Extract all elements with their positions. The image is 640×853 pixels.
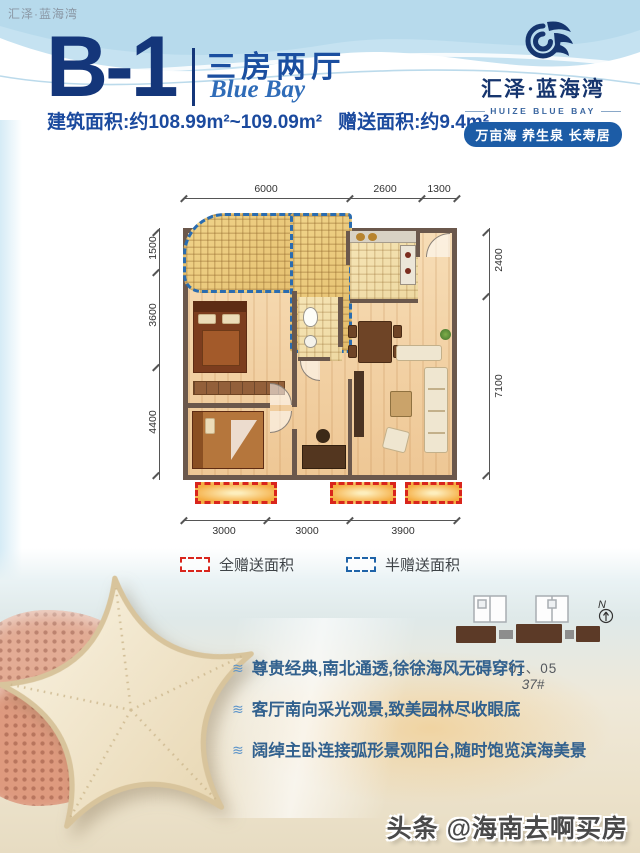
floorplan: 6000 2600 1300 3000 3000 3900 1500 3600 … [95, 168, 555, 568]
dim-line-right: 2400 7100 [489, 228, 490, 480]
balcony-full-gift-1 [195, 482, 277, 504]
floorplan-body [183, 228, 457, 480]
wave-shell-icon [513, 14, 573, 66]
title-divider [192, 48, 195, 106]
left-wave-strip [0, 120, 22, 580]
interior-wall [188, 403, 270, 408]
built-area: 建筑面积:约108.99m²~109.09m² [47, 112, 322, 133]
feature-text: 阔绰主卧连接弧形景观阳台,随时饱览滨海美景 [252, 740, 587, 762]
dim-left-1: 1500 [147, 230, 159, 266]
interior-wall [338, 297, 343, 347]
entry-door-arc [426, 233, 450, 257]
interior-wall [292, 429, 297, 475]
balcony-full-gift-3 [405, 482, 462, 504]
dim-bottom-3: 3900 [385, 525, 421, 537]
chair-icon [348, 345, 357, 358]
poster: 汇泽·蓝海湾 B-1 三房两厅 Blue Bay 建筑面积:约108.99m²~… [0, 0, 640, 853]
dining-table-icon [358, 321, 392, 363]
tv-cabinet-icon [354, 371, 364, 437]
legend-half-gift: 半赠送面积 [346, 554, 460, 575]
legend-full-gift: 全赠送面积 [180, 554, 294, 575]
legend-half-gift-label: 半赠送面积 [385, 554, 460, 575]
dim-right-2: 7100 [493, 368, 505, 404]
bed-icon [192, 411, 264, 469]
coffee-table-icon [390, 391, 412, 417]
developer-logo: 汇泽·蓝海湾 HUIZE BLUE BAY 万亩海 养生泉 长寿居 [454, 14, 632, 147]
sink-icon [304, 335, 317, 348]
unit-type-en: Blue Bay [210, 76, 305, 104]
dim-line-bottom: 3000 3000 3900 [183, 520, 457, 521]
feature-item: ≋ 尊贵经典,南北通透,徐徐海风无碍穿行 [232, 658, 592, 680]
logo-name-en: HUIZE BLUE BAY [490, 106, 596, 116]
stove-icon [400, 245, 416, 285]
building-key-plan: N [452, 592, 614, 650]
chair-icon [393, 325, 402, 338]
rule-left [465, 111, 485, 112]
watermark: 头条 @海南去啊买房 [387, 809, 628, 845]
rule-right [601, 111, 621, 112]
interior-wall [292, 291, 297, 407]
bathroom-door-arc [300, 361, 320, 381]
legend: 全赠送面积 半赠送面积 [0, 554, 640, 575]
interior-wall [346, 231, 350, 265]
feature-text: 尊贵经典,南北通透,徐徐海风无碍穿行 [252, 658, 525, 680]
interior-wall [350, 299, 418, 303]
dim-left-2: 3600 [147, 297, 159, 333]
bathroom [298, 297, 342, 361]
desk-icon [302, 445, 346, 469]
feature-item: ≋ 客厅南向采光观景,致美园林尽收眼底 [232, 699, 592, 721]
interior-wall [416, 231, 420, 257]
dim-top-2: 2600 [367, 183, 403, 195]
loveseat-icon [396, 345, 442, 361]
sofa-icon [424, 367, 448, 453]
kitchen [350, 231, 418, 299]
dim-line-left: 1500 3600 4400 [159, 228, 160, 480]
wave-bullet-icon: ≋ [232, 740, 244, 760]
feature-list: ≋ 尊贵经典,南北通透,徐徐海风无碍穿行 ≋ 客厅南向采光观景,致美园林尽收眼底… [232, 658, 592, 781]
interior-wall [348, 379, 352, 475]
dim-top-1: 6000 [248, 183, 284, 195]
chair-icon [348, 325, 357, 338]
sink-icon [368, 233, 377, 241]
dim-right-1: 2400 [493, 242, 505, 278]
dim-line-top: 6000 2600 1300 [183, 198, 457, 199]
dim-left-3: 4400 [147, 404, 159, 440]
dim-bottom-2: 3000 [289, 525, 325, 537]
dim-top-3: 1300 [421, 183, 457, 195]
blue-dashed-swatch [346, 557, 376, 572]
north-arrow-icon: N [598, 599, 613, 623]
feature-text: 客厅南向采光观景,致美园林尽收眼底 [252, 699, 521, 721]
area-summary: 建筑面积:约108.99m²~109.09m²赠送面积:约9.4m² [47, 107, 505, 134]
entry-hall [418, 231, 452, 299]
sink-icon [356, 233, 365, 241]
desk-chair-icon [316, 429, 330, 443]
armchair-icon [382, 426, 411, 453]
wave-bullet-icon: ≋ [232, 658, 244, 678]
toilet-icon [303, 307, 318, 327]
legend-full-gift-label: 全赠送面积 [219, 554, 294, 575]
wave-bullet-icon: ≋ [232, 699, 244, 719]
unit-code-title: B-1 [46, 18, 176, 117]
bed-icon [193, 301, 247, 373]
logo-slogan-pill: 万亩海 养生泉 长寿居 [464, 122, 621, 147]
red-dashed-swatch [180, 557, 210, 572]
feature-item: ≋ 阔绰主卧连接弧形景观阳台,随时饱览滨海美景 [232, 740, 592, 762]
logo-name-en-row: HUIZE BLUE BAY [454, 106, 632, 116]
logo-name-cn: 汇泽·蓝海湾 [454, 73, 632, 103]
balcony-full-gift-2 [330, 482, 396, 504]
dim-bottom-1: 3000 [206, 525, 242, 537]
study [300, 383, 350, 475]
plant-icon [440, 329, 451, 340]
